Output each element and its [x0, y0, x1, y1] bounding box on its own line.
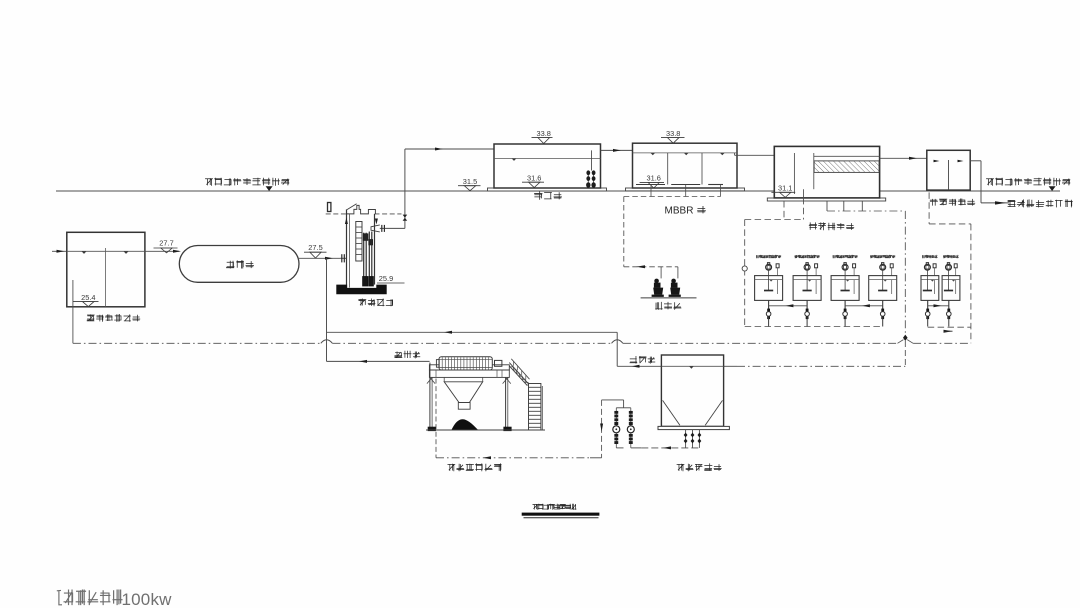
svg-text:27.5: 27.5	[308, 243, 322, 252]
svg-text:31.6: 31.6	[527, 174, 541, 183]
svg-text:27.7: 27.7	[159, 239, 173, 248]
svg-text:100kw: 100kw	[122, 590, 173, 608]
svg-text:33.8: 33.8	[537, 129, 551, 138]
svg-text:31.6: 31.6	[647, 174, 661, 183]
svg-text:31.5: 31.5	[463, 177, 477, 186]
svg-text:33.8: 33.8	[666, 129, 680, 138]
svg-text:MBBR: MBBR	[665, 206, 694, 217]
svg-text:31.1: 31.1	[778, 184, 792, 193]
svg-text:25.4: 25.4	[81, 293, 95, 302]
svg-text:25.9: 25.9	[379, 274, 393, 283]
